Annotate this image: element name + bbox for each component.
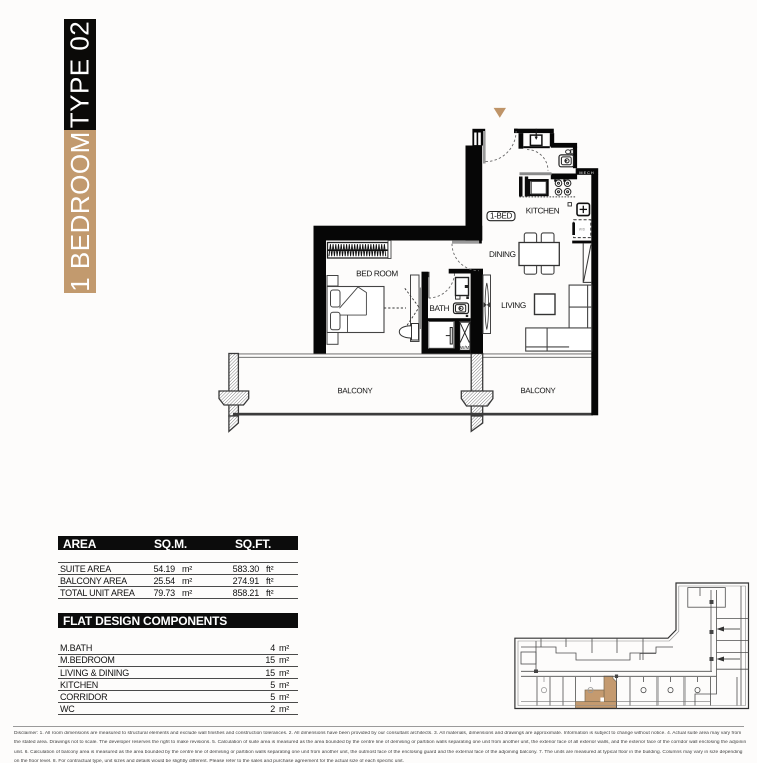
svg-text:BALCONY: BALCONY: [338, 386, 374, 395]
svg-text:KITCHEN: KITCHEN: [526, 206, 560, 215]
svg-text:BALCONY: BALCONY: [521, 386, 557, 395]
svg-text:LIVING: LIVING: [501, 301, 526, 310]
svg-text:BED ROOM: BED ROOM: [356, 269, 398, 278]
svg-text:1-BED: 1-BED: [490, 212, 513, 221]
svg-text:MECH: MECH: [579, 171, 594, 175]
svg-text:BATH: BATH: [429, 304, 449, 313]
svg-text:W/D: W/D: [579, 228, 586, 232]
svg-text:W/M: W/M: [460, 345, 469, 350]
svg-text:DINING: DINING: [489, 250, 516, 259]
